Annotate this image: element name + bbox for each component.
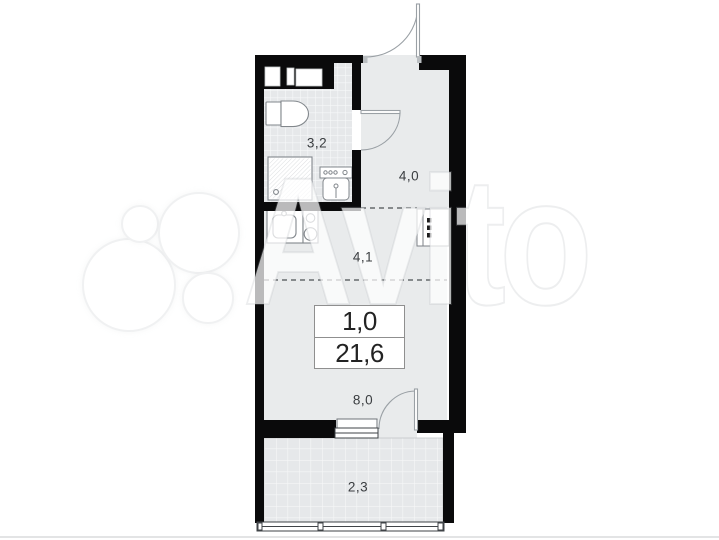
label-bathroom-area: 3,2: [307, 136, 327, 151]
entrance-door-icon: [363, 4, 422, 63]
washbasin-icon: [320, 167, 352, 200]
duct-niches-icon: [265, 67, 322, 86]
kitchen-sink-icon: [267, 209, 303, 243]
apartment-info-box: 1,0 21,6: [314, 305, 405, 369]
window-icon: [335, 419, 378, 438]
label-room-area: 8,0: [353, 393, 373, 408]
floor-plan-drawing: [0, 0, 719, 540]
toilet-icon: [266, 101, 309, 127]
label-hall-area: 4,0: [399, 169, 419, 184]
wardrobe-icon: [417, 209, 449, 246]
total-area-value: 21,6: [315, 338, 404, 369]
shower-icon: [268, 157, 312, 200]
floorplan-image: Avito 3,2 4,0 4,1 8,0 2,3 1,0 21,6: [0, 0, 719, 540]
balcony-window-icon: [257, 522, 444, 531]
rooms-count-value: 1,0: [315, 306, 404, 338]
label-balcony-area: 2,3: [348, 480, 368, 495]
stove-icon: [303, 210, 318, 243]
label-kitchen-zone-area: 4,1: [353, 250, 373, 265]
